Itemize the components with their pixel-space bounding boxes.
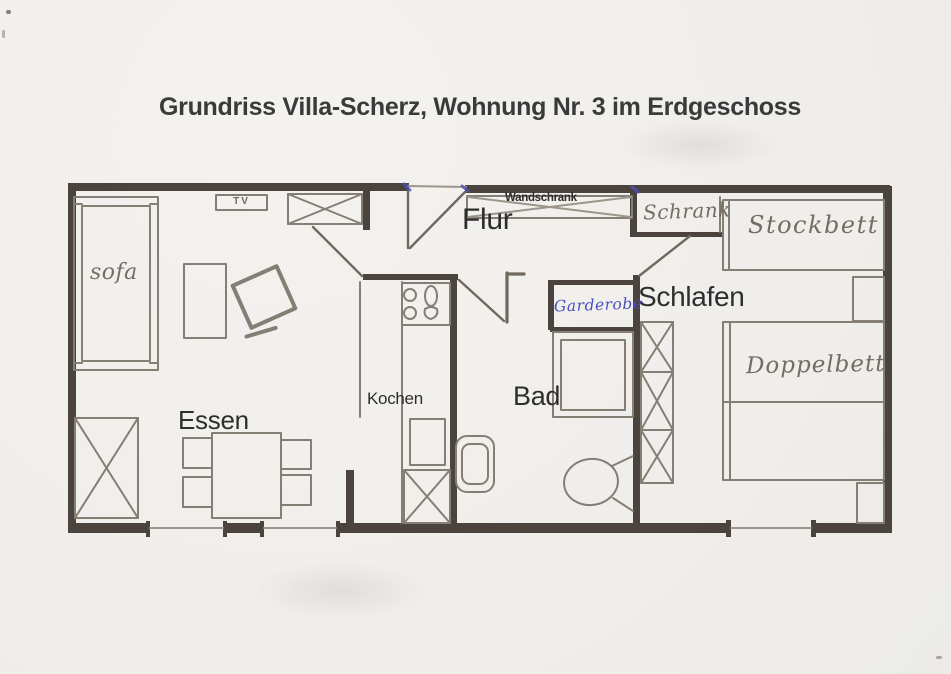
bath-door-swing [459,280,504,321]
window-jamb [260,521,264,537]
wall-bottom-3 [813,523,892,533]
kitchen-sink [410,419,445,465]
area-label-essen: Essen [178,407,249,433]
floorplan-page: Grundriss Villa-Scherz, Wohnung Nr. 3 im… [0,0,951,674]
windows [150,186,811,528]
schrank-label: Schrank [643,199,731,222]
wall-top-left [68,183,409,191]
dining-chair [281,475,311,505]
crossed-box-living [75,418,138,518]
wall-kitchen-top [363,274,458,280]
nightstand-top [853,277,884,321]
dining-chair [183,477,212,507]
dining-chair [281,440,311,469]
dining-chair [183,438,212,468]
wall-schrank-bottom [630,232,723,237]
room-label-kochen: Kochen [367,390,423,407]
window-jamb [336,521,340,537]
nightstand-bottom [857,483,884,523]
tv-label: TV [216,197,267,207]
window-jamb [223,521,227,537]
toilet [561,455,633,511]
room-label-schlafen: Schlafen [638,283,745,311]
kitchen-crossed-cabinet [404,470,450,523]
room-label-bad: Bad [513,383,560,410]
shower [553,332,633,417]
burner [404,307,416,319]
bedroom-wardrobe-crossed [641,322,673,483]
garderobe-label: Garderobe [554,296,643,315]
wall-kitchen-stub [346,470,354,525]
stockbett-label: Stockbett [748,213,879,237]
wall-bottom-1 [68,523,148,533]
wall-garderobe-top [548,280,636,285]
burner [404,289,416,301]
entry-opening-line [408,186,466,187]
sofa-label: sofa [90,262,138,284]
burner [425,286,437,306]
window-jamb [146,521,150,537]
wall-living-hall-stub [363,190,370,230]
double-bed [723,322,884,480]
coffee-table [184,264,226,338]
room-label-flur: Flur [462,205,512,235]
page-title: Grundriss Villa-Scherz, Wohnung Nr. 3 im… [159,95,801,120]
sideboard-crossed [288,194,362,224]
doppelbett-label: Doppelbett [746,353,886,378]
armchair [225,266,299,340]
wall-kitchen-bath [450,276,457,523]
burner [425,307,438,319]
bedroom-door-swing [639,236,690,276]
wall-bottom-pier [225,523,262,533]
wall-bottom-2 [338,523,728,533]
living-hall-door-swing [313,227,362,276]
closet-label-wandschrank: Wandschrank [505,193,577,205]
washbasin [456,436,494,492]
entry-door-swing [410,192,465,248]
dining-set [183,433,311,518]
dining-table [212,433,281,518]
